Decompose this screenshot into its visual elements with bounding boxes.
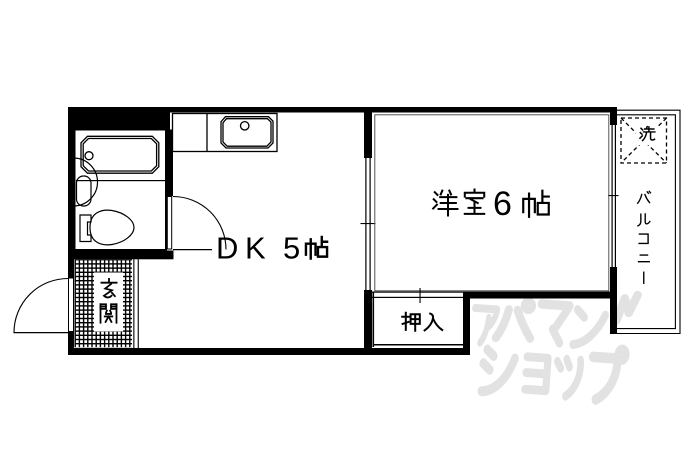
svg-text:K: K [245,231,266,266]
svg-text:D: D [216,231,238,266]
svg-text:6: 6 [493,185,512,223]
svg-text:5: 5 [283,231,300,266]
